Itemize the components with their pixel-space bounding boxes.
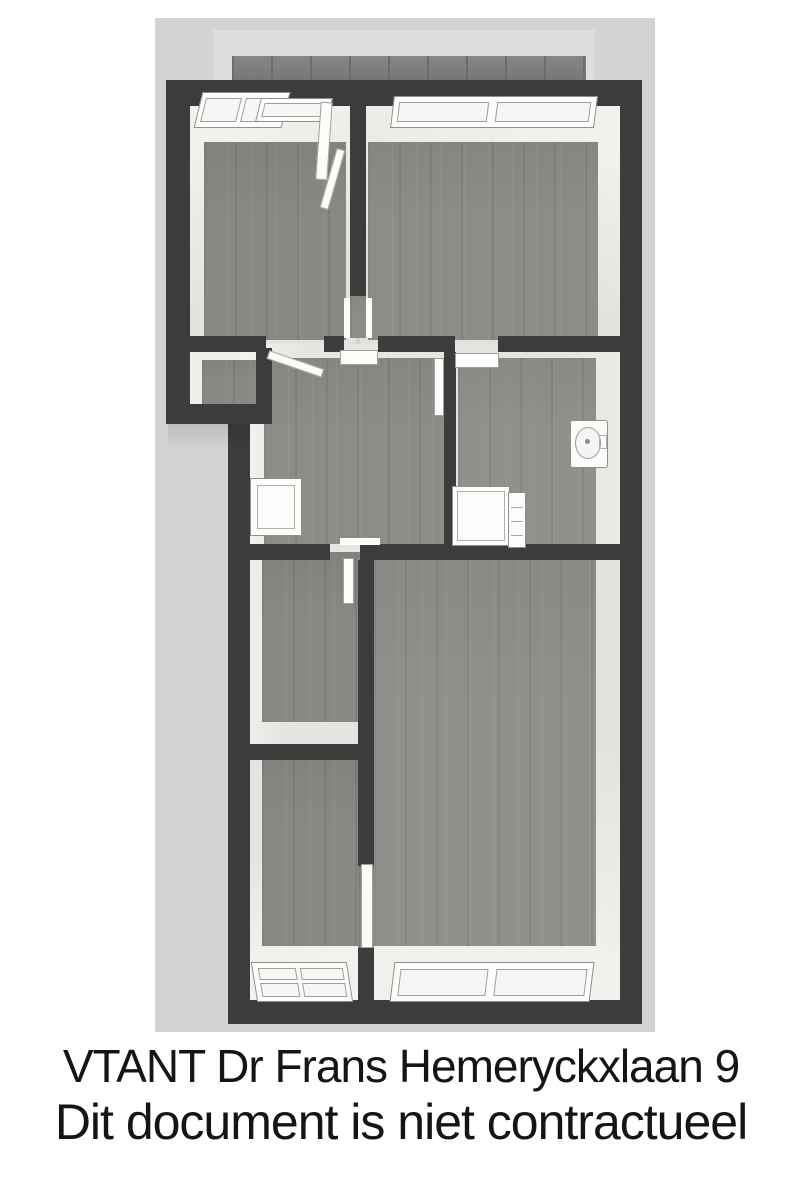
entry-alcove-floor — [202, 360, 258, 408]
window-pane — [258, 968, 298, 980]
wall-a-segment-4 — [498, 336, 620, 352]
wall-b-segment-1 — [250, 544, 330, 560]
bedroom-2-window — [390, 96, 598, 128]
door-jamb — [366, 298, 372, 338]
window-pane — [200, 98, 242, 122]
wall-a-segment-1 — [190, 336, 266, 352]
bedroom-2-floor — [368, 142, 598, 340]
living-room-door-leaf — [361, 864, 373, 948]
outer-wall-bottom — [228, 1000, 642, 1024]
bedroom-3-floor — [262, 752, 360, 946]
shower-icon — [452, 486, 510, 546]
doorway-bedrooms-floor — [350, 296, 366, 338]
wall-a-segment-3 — [378, 336, 455, 352]
toilet-tank — [599, 435, 607, 449]
washbasin-icon — [250, 478, 302, 536]
shower-tray-line — [457, 491, 505, 541]
wall-v3-upper — [358, 560, 374, 866]
window-pane — [397, 969, 488, 996]
door-leaf-against-wall — [340, 350, 378, 365]
washbasin-line — [257, 485, 295, 529]
window-pane — [300, 968, 345, 980]
caption: VTANT Dr Frans Hemeryckxlaan 9 Dit docum… — [0, 1038, 802, 1150]
outer-wall-left-upper — [166, 80, 190, 424]
bedroom-3-window — [251, 962, 353, 1002]
window-pane — [493, 969, 587, 996]
shower-shelf-unit — [508, 492, 526, 548]
storage-door-leaf — [343, 558, 354, 604]
caption-line-2: Dit document is niet contractueel — [0, 1094, 802, 1150]
floorplan-page: VTANT Dr Frans Hemeryckxlaan 9 Dit docum… — [0, 0, 802, 1200]
living-room-window — [390, 962, 595, 1002]
window-pane — [397, 102, 489, 122]
door-lintel — [340, 538, 380, 545]
window-pane — [302, 983, 347, 997]
shelf-line — [511, 521, 523, 522]
wall-between-bedrooms — [350, 106, 366, 296]
living-room-floor — [374, 552, 596, 946]
toilet-icon — [570, 420, 608, 468]
wall-shadow — [168, 424, 250, 458]
window-pane — [261, 103, 326, 117]
toilet-flush-dot — [585, 439, 590, 444]
shelf-line — [511, 535, 523, 536]
bathroom-door-leaf — [455, 353, 499, 368]
wall-v3-lower — [358, 948, 374, 1000]
wall-b-segment-2 — [360, 544, 620, 560]
shelf-line — [511, 507, 523, 508]
outer-wall-right — [620, 80, 642, 1024]
door-jamb — [344, 298, 350, 338]
door-leaf-hall-side — [434, 358, 444, 416]
outer-wall-left-lower — [228, 404, 250, 1024]
window-pane — [495, 102, 591, 122]
caption-line-1: VTANT Dr Frans Hemeryckxlaan 9 — [0, 1038, 802, 1094]
wall-c — [246, 744, 366, 760]
window-pane — [260, 983, 300, 997]
